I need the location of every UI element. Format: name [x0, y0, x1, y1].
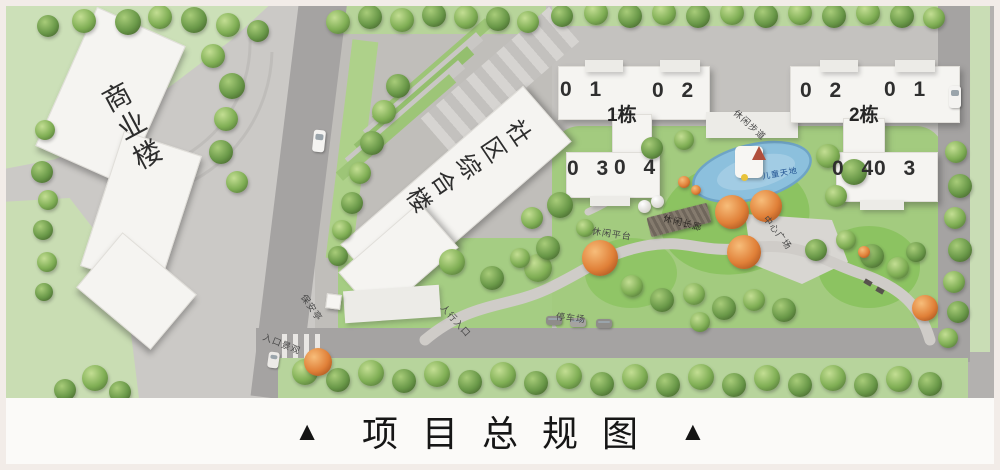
- orange-tree: [727, 235, 761, 269]
- car: [267, 351, 280, 368]
- tree: [947, 301, 969, 323]
- tree: [360, 131, 384, 155]
- tree: [556, 363, 582, 389]
- garden-main-path: [425, 244, 930, 340]
- tree: [358, 360, 384, 386]
- tree: [372, 100, 396, 124]
- tree: [392, 369, 416, 393]
- tree: [341, 192, 363, 214]
- orange-tree: [858, 246, 870, 258]
- tree: [788, 373, 812, 397]
- tree: [886, 366, 912, 392]
- tower-2-unit-02: 0 2: [800, 79, 847, 103]
- tree: [805, 239, 827, 261]
- tree: [788, 1, 812, 25]
- tree: [683, 283, 705, 305]
- orange-tree: [691, 185, 701, 195]
- tree: [825, 185, 847, 207]
- tree: [349, 162, 371, 184]
- tower-2-wing-detail: [860, 200, 904, 210]
- tree: [115, 9, 141, 35]
- plan-title: 项目总规图: [338, 405, 662, 457]
- tree: [148, 5, 172, 29]
- tree: [82, 365, 108, 391]
- tree: [35, 120, 55, 140]
- tree: [38, 190, 58, 210]
- orange-tree: [715, 195, 749, 229]
- tree: [37, 15, 59, 37]
- tree: [454, 5, 478, 29]
- tree: [37, 252, 57, 272]
- tree: [226, 171, 248, 193]
- tree: [209, 140, 233, 164]
- tree: [772, 298, 796, 322]
- tower-2-unit-03: 0 3: [874, 157, 921, 181]
- tree: [656, 373, 680, 397]
- tree: [754, 4, 778, 28]
- tree: [836, 230, 856, 250]
- tree: [536, 236, 560, 260]
- tree: [918, 372, 942, 396]
- tower-1-name: 1栋: [607, 100, 637, 127]
- tower-2-roof-detail: [820, 60, 858, 72]
- pavilion-dome: [638, 200, 651, 213]
- tower-1-roof-detail: [660, 60, 700, 72]
- tree: [521, 207, 543, 229]
- tree: [652, 1, 676, 25]
- tree: [722, 373, 746, 397]
- tree: [201, 44, 225, 68]
- tree: [517, 11, 539, 33]
- tree: [754, 365, 780, 391]
- tree: [906, 242, 926, 262]
- tower-1-unit-03: 0 3: [567, 157, 614, 181]
- tree: [686, 4, 710, 28]
- orange-tree: [304, 348, 332, 376]
- tree: [621, 275, 643, 297]
- tree: [820, 365, 846, 391]
- tree: [35, 283, 53, 301]
- tree: [712, 296, 736, 320]
- tree: [247, 20, 269, 42]
- tree: [439, 249, 465, 275]
- tree: [547, 192, 573, 218]
- caption-bar: ▲ 项目总规图 ▲: [6, 398, 994, 464]
- tree: [945, 141, 967, 163]
- car: [949, 86, 961, 108]
- tree: [590, 372, 614, 396]
- tree: [422, 3, 446, 27]
- tree: [424, 361, 450, 387]
- tree: [216, 13, 240, 37]
- tree: [856, 1, 880, 25]
- tree: [551, 5, 573, 27]
- tree: [214, 107, 238, 131]
- tree: [938, 328, 958, 348]
- tree: [890, 4, 914, 28]
- orange-tree: [582, 240, 618, 276]
- tree: [948, 238, 972, 262]
- tree: [923, 7, 945, 29]
- tree: [486, 7, 510, 31]
- tree: [490, 362, 516, 388]
- tree: [31, 161, 53, 183]
- site-plan-poster: 商业楼 社区综合楼 0 1 0 2 1栋 0 3 0 4 0 2 0 1 2栋 …: [0, 0, 1000, 470]
- tree: [480, 266, 504, 290]
- tree: [386, 74, 410, 98]
- tree: [326, 10, 350, 34]
- orange-tree: [678, 176, 690, 188]
- tree: [622, 364, 648, 390]
- tree: [688, 364, 714, 390]
- tree: [944, 207, 966, 229]
- tree: [332, 220, 352, 240]
- tree: [584, 1, 608, 25]
- tower-2-roof-detail: [895, 60, 935, 72]
- tree: [822, 4, 846, 28]
- tower-1-wing-detail: [590, 196, 630, 206]
- tree: [54, 379, 76, 400]
- triangle-left-icon: ▲: [294, 418, 320, 444]
- site-plan: 商业楼 社区综合楼 0 1 0 2 1栋 0 3 0 4 0 2 0 1 2栋 …: [0, 0, 1000, 400]
- tree: [618, 4, 642, 28]
- tree: [854, 373, 878, 397]
- tree: [720, 1, 744, 25]
- pond-dot: [741, 174, 748, 181]
- tree: [943, 271, 965, 293]
- tree: [72, 9, 96, 33]
- tree: [887, 257, 909, 279]
- tree: [358, 5, 382, 29]
- tree: [510, 248, 530, 268]
- car: [312, 129, 326, 152]
- tree: [328, 246, 348, 266]
- tree: [458, 370, 482, 394]
- community-podium: [343, 285, 441, 324]
- tree: [524, 371, 548, 395]
- tower-1-roof-detail: [585, 60, 623, 72]
- security-booth-structure: [325, 293, 342, 310]
- tree: [690, 312, 710, 332]
- triangle-right-icon: ▲: [680, 418, 706, 444]
- tree: [181, 7, 207, 33]
- tree: [390, 8, 414, 32]
- tree: [219, 73, 245, 99]
- pavilion-dome: [651, 195, 664, 208]
- tree: [33, 220, 53, 240]
- pond-sculpture: [752, 146, 766, 160]
- tree: [948, 174, 972, 198]
- car: [596, 319, 612, 328]
- tower-2-unit-01: 0 1: [884, 78, 931, 102]
- tree: [650, 288, 674, 312]
- orange-tree: [912, 295, 938, 321]
- tower-2-name: 2栋: [849, 100, 879, 127]
- tower-1-unit-01: 0 1: [560, 78, 607, 102]
- tower-1-unit-04: 0 4: [614, 156, 661, 180]
- tower-1-unit-02: 0 2: [652, 79, 699, 103]
- tree: [326, 368, 350, 392]
- tower-2-unit-04: 0 4: [832, 157, 879, 181]
- tree: [674, 130, 694, 150]
- tree: [743, 289, 765, 311]
